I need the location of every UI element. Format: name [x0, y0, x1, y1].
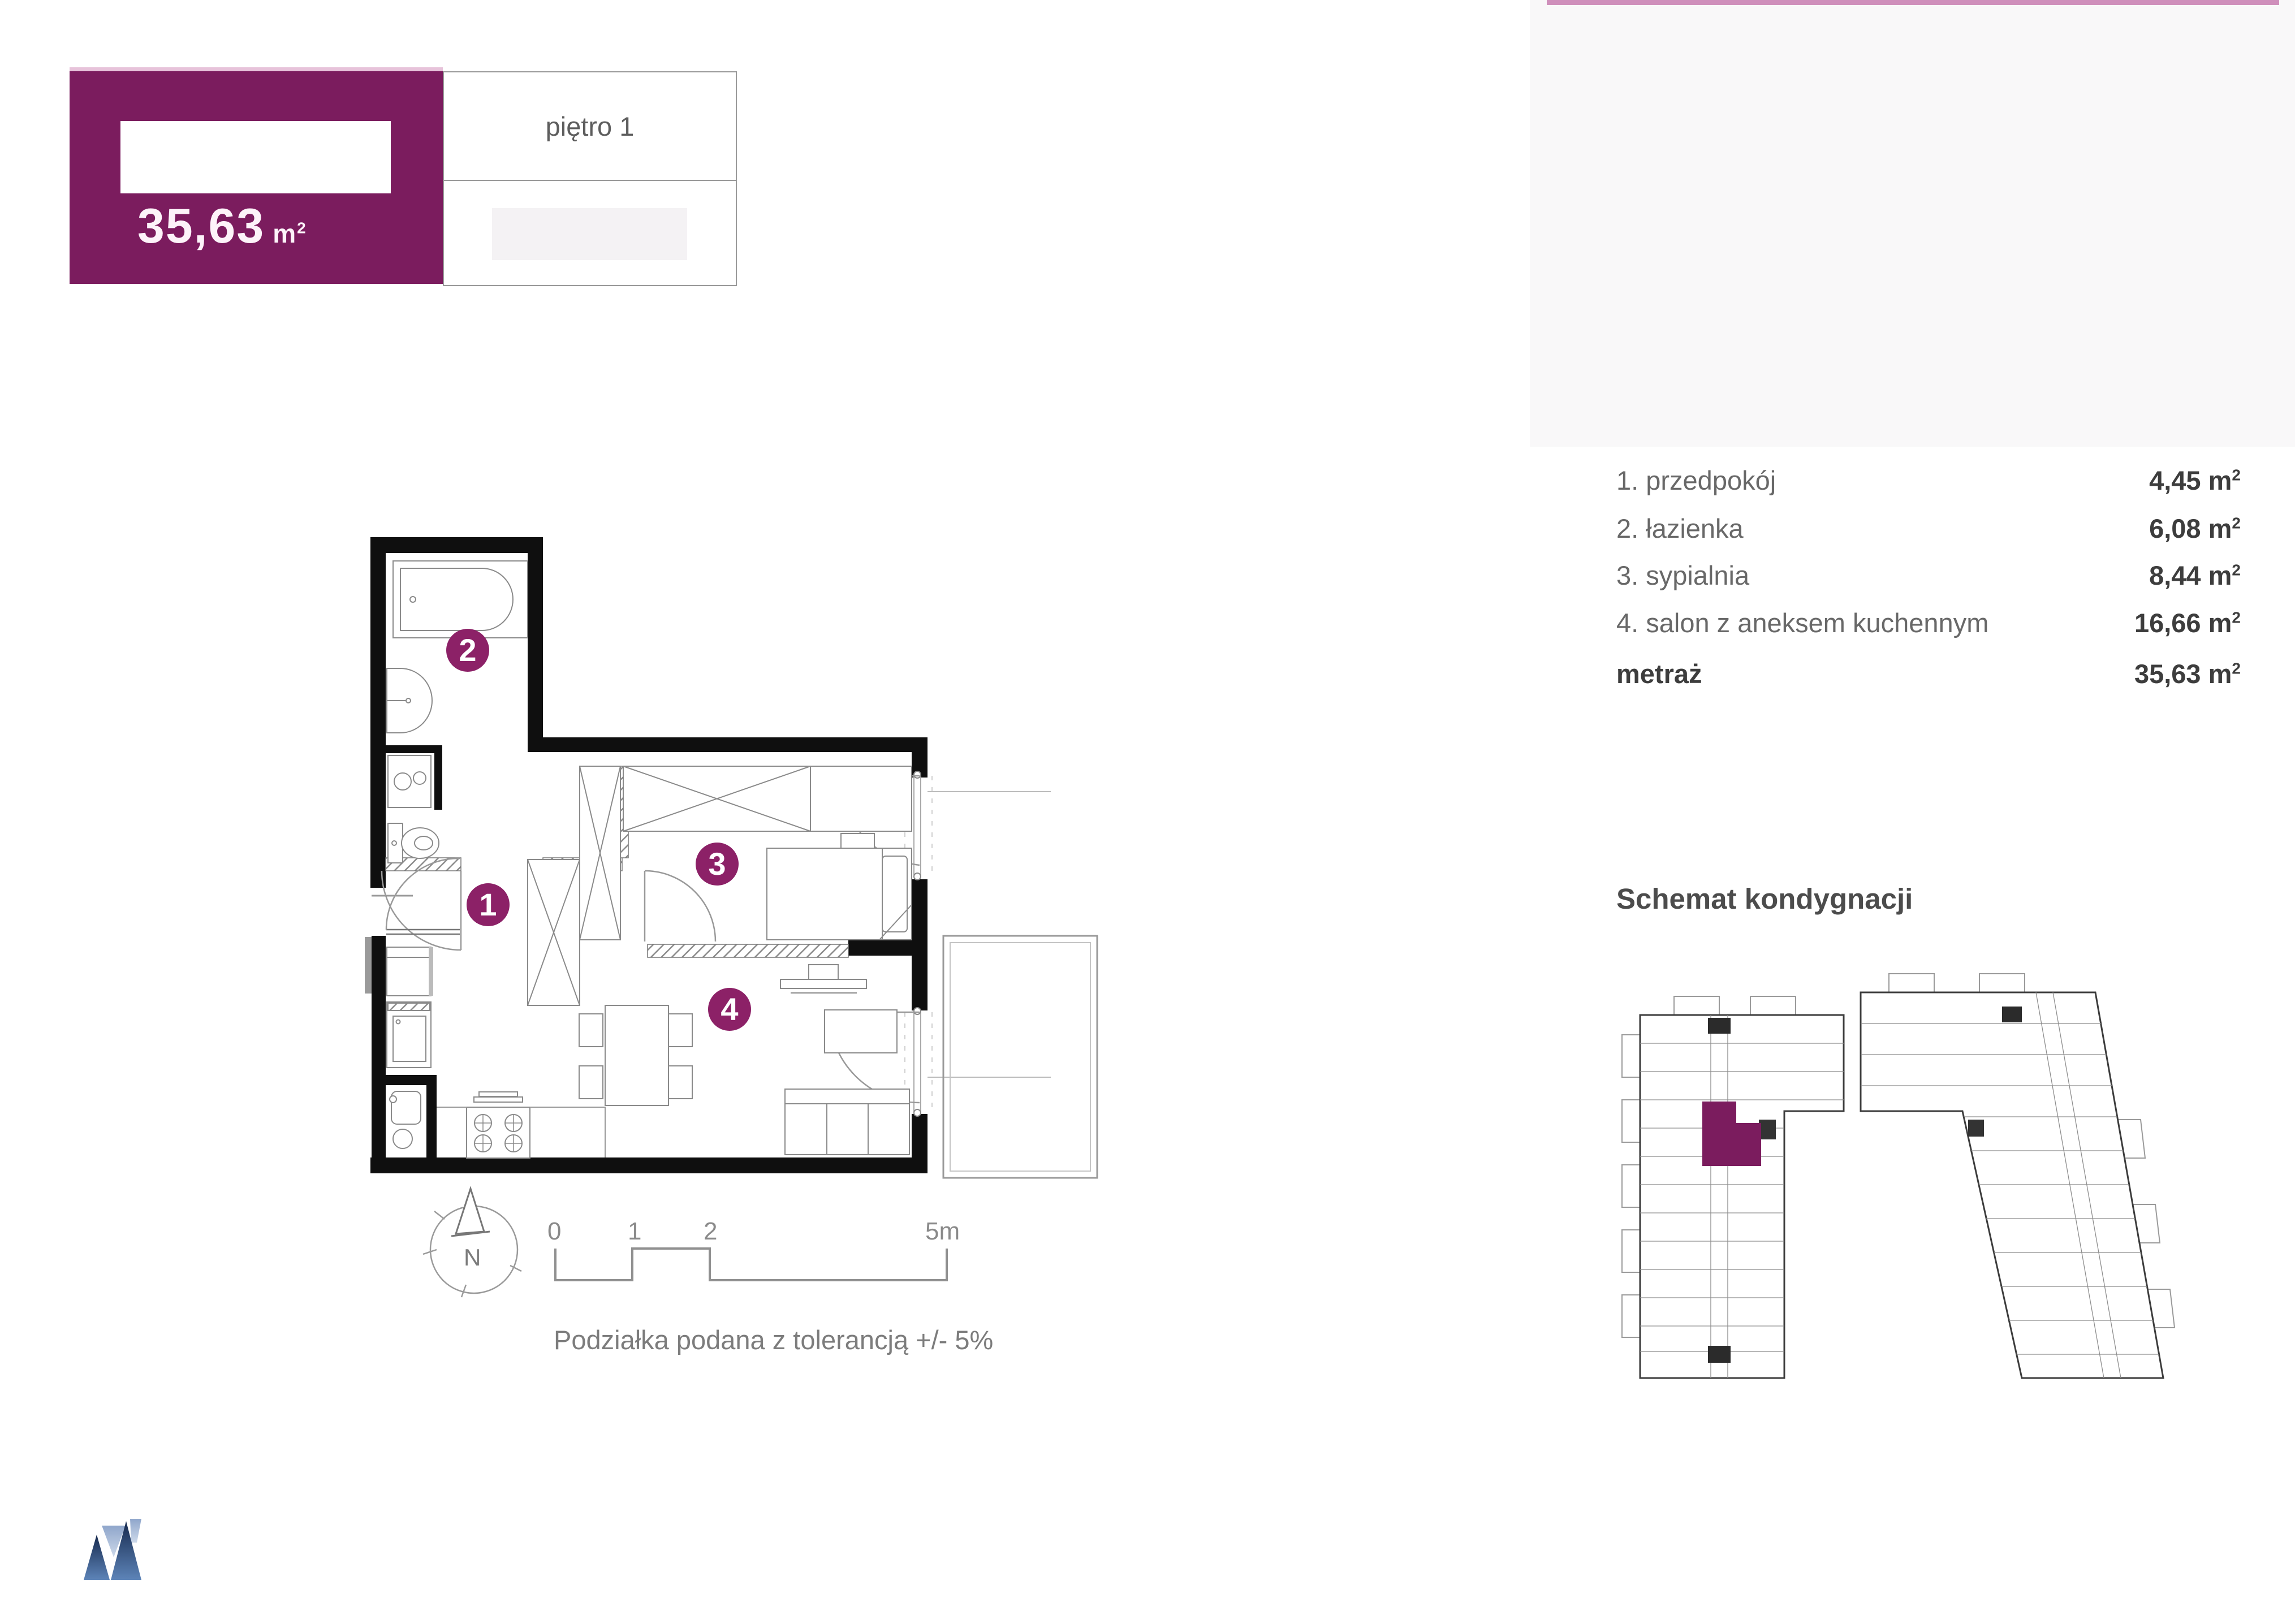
unit-exp: 2 [2232, 561, 2241, 578]
total-row: metraż 35,63 m2 [1616, 658, 2241, 693]
accent-top-bar [1547, 0, 2279, 5]
balcony [943, 936, 1097, 1178]
redacted-floor-cell [492, 208, 687, 260]
total-label: metraż [1616, 659, 1702, 689]
area-number: 35,63 [137, 199, 265, 253]
bedroom-furniture [767, 848, 912, 993]
area-unit: m [273, 219, 297, 248]
room-label: 2. łazienka [1616, 513, 1744, 543]
header-area-value: 35,63m2 [137, 198, 307, 254]
room-label: 1. przedpokój [1616, 465, 1776, 495]
unit: m [2208, 659, 2232, 689]
unit: m [2208, 465, 2232, 495]
scale-tick: 2 [704, 1217, 717, 1245]
floor-info-box: piętro 1 [443, 71, 737, 286]
room-number: 3 [708, 846, 726, 882]
chair [668, 1066, 692, 1099]
scale-tick: 5m [925, 1217, 960, 1245]
scale-bar: 0 1 2 5m [547, 1217, 960, 1280]
area-unit-exponent: 2 [297, 219, 307, 237]
room-row: 2. łazienka 6,08 m2 [1616, 513, 2241, 548]
unit-exp: 2 [2232, 659, 2241, 677]
north-arrow [456, 1189, 484, 1234]
pillow [882, 856, 907, 932]
unit: m [2208, 560, 2232, 590]
room-number: 1 [479, 887, 497, 922]
sofa [785, 1089, 909, 1155]
apartment-floor-plan: 1 2 3 4 [339, 509, 1120, 1199]
header-area-box: 35,63m2 [70, 71, 443, 284]
building-wings [1640, 992, 2163, 1378]
unit-exp: 2 [2232, 514, 2241, 532]
room-area: 8,44 [2149, 560, 2201, 590]
fridge [387, 947, 431, 996]
schematic-title: Schemat kondygnacji [1616, 882, 1913, 915]
tv [780, 979, 866, 988]
north-label: N [464, 1244, 481, 1271]
unit: m [2208, 608, 2232, 638]
north-compass [423, 1189, 521, 1297]
side-panel-background [1530, 0, 2295, 447]
scale-tick: 0 [547, 1217, 561, 1245]
exterior-wall-stub [365, 937, 372, 994]
logo-shape [84, 1535, 110, 1580]
room-row: 1. przedpokój 4,45 m2 [1616, 465, 2241, 500]
room-area: 16,66 [2134, 608, 2201, 638]
dining-table [605, 1005, 668, 1105]
room-row: 3. sypialnia 8,44 m2 [1616, 560, 2241, 595]
room-row: 4. salon z aneksem kuchennym 16,66 m2 [1616, 607, 2241, 642]
stove [467, 1107, 530, 1158]
header-accent-strip [70, 67, 443, 71]
scale-tolerance-note: Podziałka podana z tolerancją +/- 5% [554, 1324, 993, 1355]
coffee-table [825, 1010, 897, 1053]
building-level-schematic [1606, 950, 2177, 1380]
room-label: 3. sypialnia [1616, 560, 1749, 590]
room-area: 6,08 [2149, 513, 2201, 543]
bathroom-fixtures [387, 561, 528, 863]
unit-exp: 2 [2232, 466, 2241, 483]
unit-exp: 2 [2232, 608, 2241, 626]
chair [668, 1014, 692, 1047]
total-area: 35,63 [2134, 659, 2201, 689]
scale-tick: 1 [628, 1217, 641, 1245]
chair [579, 1014, 603, 1047]
redacted-unit-name [120, 121, 391, 193]
unit: m [2208, 513, 2232, 543]
room-label: 4. salon z aneksem kuchennym [1616, 608, 1988, 638]
room-area: 4,45 [2149, 465, 2201, 495]
developer-logo [79, 1519, 146, 1584]
floor-label: piętro 1 [444, 72, 736, 181]
kitchen-sink [391, 1091, 421, 1124]
room-number: 4 [721, 991, 738, 1027]
logo-shape [130, 1519, 141, 1543]
chair [579, 1066, 603, 1099]
hood [474, 1097, 523, 1102]
apartment-card-page: 35,63m2 piętro 1 1. przedpokój 4,45 m2 2… [0, 0, 2295, 1624]
closet-section [810, 766, 912, 831]
room-number: 2 [459, 632, 476, 668]
